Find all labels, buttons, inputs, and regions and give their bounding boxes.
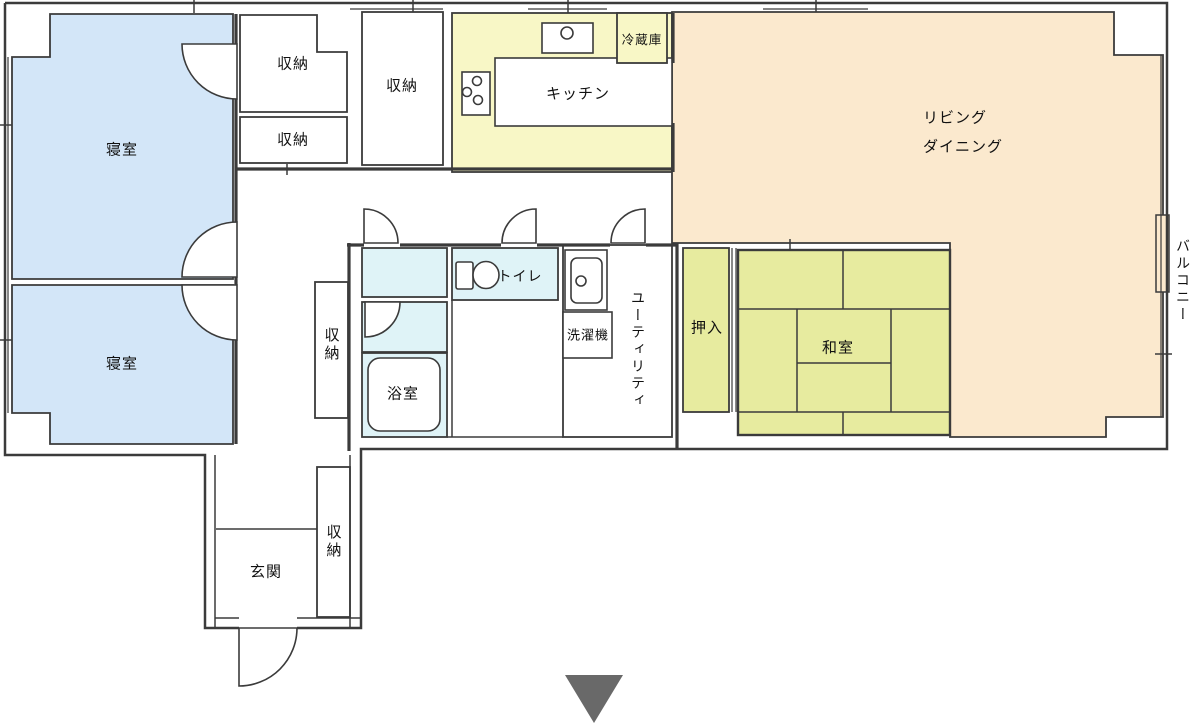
room-label-bedroom-1: 寝室 <box>106 143 138 158</box>
room-label-utility: ユーティリティ <box>631 291 645 410</box>
front-door <box>239 628 297 686</box>
room-label-storage-3: 収納 <box>386 79 418 94</box>
toilet-tank <box>456 262 473 289</box>
floor-plan: 寝室 寝室 収納 収納 収納 収納 収納 キッチン 冷蔵庫 リビング ダイニング… <box>0 0 1197 727</box>
utility-door <box>611 209 645 243</box>
laundry-drain-icon <box>576 276 586 286</box>
room-label-toilet: トイレ <box>498 269 543 283</box>
stove-burner-icon <box>463 88 472 97</box>
label-refrigerator: 冷蔵庫 <box>622 34 663 47</box>
room-label-bedroom-2: 寝室 <box>106 357 138 372</box>
sink-drain-icon <box>561 27 573 39</box>
room-label-bathroom: 浴室 <box>387 387 419 402</box>
room-label-living: リビング <box>923 111 987 126</box>
room-label-storage-1: 収納 <box>277 57 309 72</box>
label-washing-machine: 洗濯機 <box>567 329 609 342</box>
room-label-storage-4: 収納 <box>324 327 339 363</box>
floor-plan-drawing <box>0 0 1197 727</box>
washroom-upper-floor <box>362 248 447 297</box>
down-triangle-marker <box>565 675 623 723</box>
room-label-dining: ダイニング <box>923 140 1003 155</box>
toilet-door <box>502 209 536 243</box>
washroom-door <box>364 209 398 243</box>
room-label-oshiire: 押入 <box>691 321 723 336</box>
stove-burner-icon <box>474 96 483 105</box>
label-balcony: バルコニー <box>1176 239 1190 324</box>
room-label-japanese-room: 和室 <box>822 341 854 356</box>
room-label-storage-2: 収納 <box>277 133 309 148</box>
room-label-kitchen: キッチン <box>546 87 610 102</box>
room-label-entrance: 玄関 <box>250 565 282 580</box>
room-label-storage-5: 収納 <box>326 524 341 560</box>
stove-burner-icon <box>473 77 482 86</box>
toilet-bowl <box>473 262 499 289</box>
